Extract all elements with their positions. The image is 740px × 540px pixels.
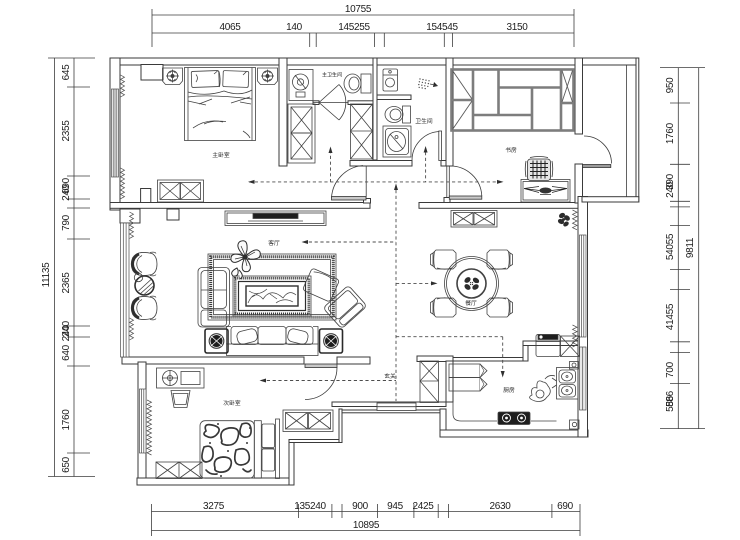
svg-text:客厅: 客厅 <box>268 239 280 247</box>
svg-text:54055: 54055 <box>665 233 676 260</box>
svg-text:主卫生间: 主卫生间 <box>322 72 342 79</box>
svg-text:3150: 3150 <box>506 22 528 33</box>
svg-text:书房: 书房 <box>505 146 517 154</box>
svg-text:11135: 11135 <box>41 262 52 288</box>
svg-text:645: 645 <box>61 64 72 81</box>
svg-text:640: 640 <box>61 344 72 361</box>
svg-text:240: 240 <box>61 325 72 342</box>
svg-text:240: 240 <box>665 181 676 198</box>
svg-text:900: 900 <box>352 501 369 512</box>
svg-text:700: 700 <box>665 361 676 378</box>
svg-text:950: 950 <box>665 77 676 94</box>
svg-text:1760: 1760 <box>665 122 676 144</box>
svg-text:240: 240 <box>61 184 72 201</box>
svg-text:3275: 3275 <box>203 501 225 512</box>
svg-text:主卧室: 主卧室 <box>212 151 230 159</box>
svg-text:10895: 10895 <box>353 520 380 531</box>
svg-text:厨房: 厨房 <box>503 386 515 394</box>
svg-text:2355: 2355 <box>61 120 72 142</box>
svg-text:1760: 1760 <box>61 409 72 431</box>
svg-text:586: 586 <box>665 395 676 412</box>
svg-text:135240: 135240 <box>294 501 326 512</box>
svg-text:945: 945 <box>387 501 404 512</box>
svg-text:2365: 2365 <box>61 272 72 294</box>
svg-text:卫生间: 卫生间 <box>415 117 433 125</box>
svg-text:10755: 10755 <box>345 4 372 15</box>
svg-text:2425: 2425 <box>412 501 434 512</box>
svg-text:790: 790 <box>61 214 72 231</box>
svg-text:4065: 4065 <box>219 22 241 33</box>
svg-text:154545: 154545 <box>426 22 458 33</box>
svg-text:次卧室: 次卧室 <box>223 399 241 407</box>
svg-text:餐厅: 餐厅 <box>465 299 477 307</box>
svg-text:9811: 9811 <box>685 237 696 258</box>
svg-text:2630: 2630 <box>489 501 511 512</box>
svg-text:玄关: 玄关 <box>384 372 396 380</box>
svg-text:41455: 41455 <box>665 303 676 330</box>
svg-text:650: 650 <box>61 456 72 473</box>
svg-text:145255: 145255 <box>338 22 370 33</box>
svg-text:140: 140 <box>286 22 303 33</box>
svg-text:690: 690 <box>557 501 574 512</box>
